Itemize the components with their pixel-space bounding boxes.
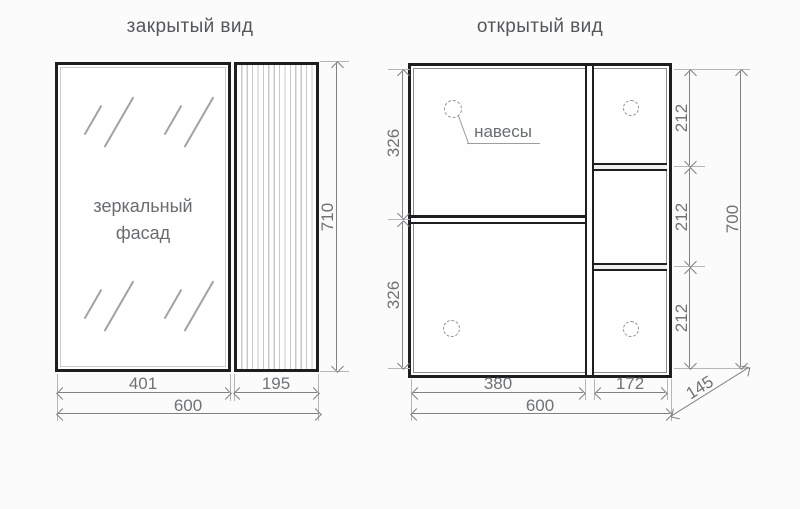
dim-label-212-1: 212 (672, 96, 690, 140)
hinges-label: навесы (464, 122, 542, 142)
glass-glare-mark (166, 277, 206, 339)
hinge-marker-bottom-left (443, 320, 460, 337)
dim-label-700: 700 (723, 197, 741, 241)
mirror-facade-label: зеркальный фасад (58, 193, 228, 247)
dim-label-401: 401 (93, 374, 193, 394)
dim-label-195: 195 (226, 374, 326, 394)
technical-drawing-canvas: закрытый вид зеркальный фасад 710 401 19… (0, 0, 800, 509)
dim-label-600-closed: 600 (138, 396, 238, 416)
vertical-divider-panel (585, 66, 594, 375)
dim-label-212-2: 212 (672, 195, 690, 239)
extension-line (388, 368, 410, 369)
dim-label-710: 710 (318, 195, 336, 239)
glass-glare-mark (86, 277, 126, 339)
hinge-marker-top-right (623, 100, 639, 116)
dim-label-326-lower: 326 (384, 273, 402, 317)
extension-line (388, 219, 410, 220)
right-shelf-1 (594, 163, 667, 171)
extension-line (388, 69, 410, 70)
hinges-label-underline (467, 143, 540, 144)
hinge-marker-bottom-right (623, 321, 639, 337)
extension-line (320, 371, 349, 372)
mirror-panel: зеркальный фасад (55, 62, 231, 372)
dim-label-212-3: 212 (672, 296, 690, 340)
extension-line (674, 69, 750, 70)
glass-glare-mark (166, 93, 206, 155)
glass-glare-mark (86, 93, 126, 155)
dim-label-145: 145 (676, 368, 724, 408)
cabinet-carcass: навесы (408, 63, 672, 378)
left-middle-shelf (411, 215, 585, 224)
ribbed-side-panel (234, 62, 319, 372)
dim-label-380: 380 (448, 374, 548, 394)
dim-label-600-open: 600 (490, 396, 590, 416)
open-view-title: открытый вид (440, 16, 640, 38)
right-shelf-2 (594, 263, 667, 271)
closed-view-title: закрытый вид (70, 16, 310, 38)
dim-label-172: 172 (580, 374, 680, 394)
dim-label-326-upper: 326 (384, 121, 402, 165)
extension-line (320, 61, 349, 62)
